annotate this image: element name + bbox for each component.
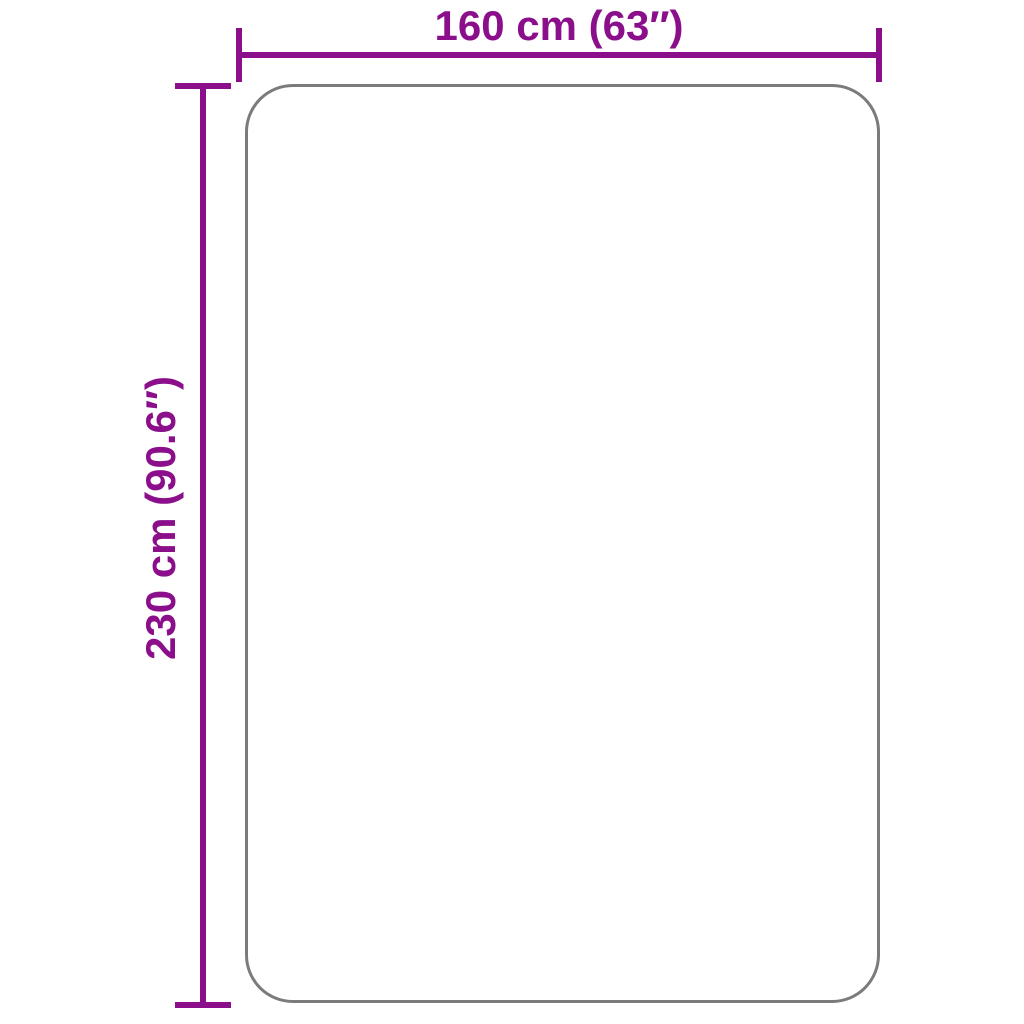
- height-dimension-cap-bottom: [175, 1002, 231, 1008]
- height-dimension-label: 230 cm (90.6″): [138, 376, 184, 660]
- product-outline: [245, 84, 880, 1003]
- height-dimension-line: [200, 84, 206, 1005]
- width-dimension-label: 160 cm (63″): [236, 3, 882, 49]
- width-dimension-line: [236, 52, 882, 58]
- dimension-diagram: 160 cm (63″) 230 cm (90.6″): [0, 0, 1024, 1024]
- height-dimension-cap-top: [175, 83, 231, 89]
